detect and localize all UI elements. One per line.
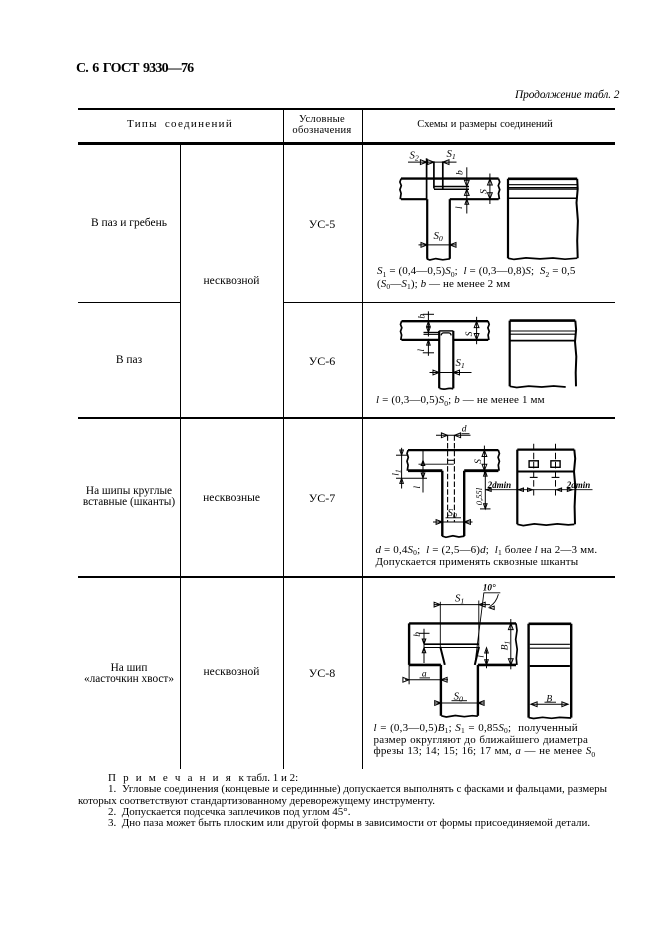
svg-text:l: l — [455, 206, 465, 209]
svg-text:b: b — [413, 632, 423, 637]
svg-text:S: S — [474, 459, 484, 464]
svg-text:l: l — [417, 349, 427, 352]
svg-text:B: B — [546, 694, 552, 704]
svg-text:S: S — [480, 189, 490, 194]
svg-text:b: b — [456, 170, 466, 175]
svg-text:S0: S0 — [434, 230, 443, 243]
svg-text:a: a — [422, 669, 427, 679]
svg-text:l: l — [476, 655, 486, 658]
svg-text:S2: S2 — [410, 150, 419, 163]
svg-text:0,55l: 0,55l — [474, 487, 484, 505]
svg-text:S: S — [465, 331, 475, 336]
svg-text:b: b — [418, 314, 428, 319]
svg-text:l1: l1 — [392, 469, 403, 476]
svg-text:10°: 10° — [483, 583, 496, 593]
svg-text:2dmin: 2dmin — [566, 480, 591, 490]
svg-text:S1: S1 — [447, 148, 456, 161]
svg-text:S1: S1 — [456, 357, 465, 370]
svg-text:S0: S0 — [448, 507, 457, 520]
svg-text:S1: S1 — [455, 593, 464, 606]
svg-text:S0: S0 — [454, 690, 463, 703]
svg-text:2dmin: 2dmin — [487, 480, 512, 490]
svg-text:l: l — [413, 486, 423, 489]
svg-text:B1: B1 — [500, 641, 511, 651]
svg-text:d: d — [462, 425, 467, 435]
